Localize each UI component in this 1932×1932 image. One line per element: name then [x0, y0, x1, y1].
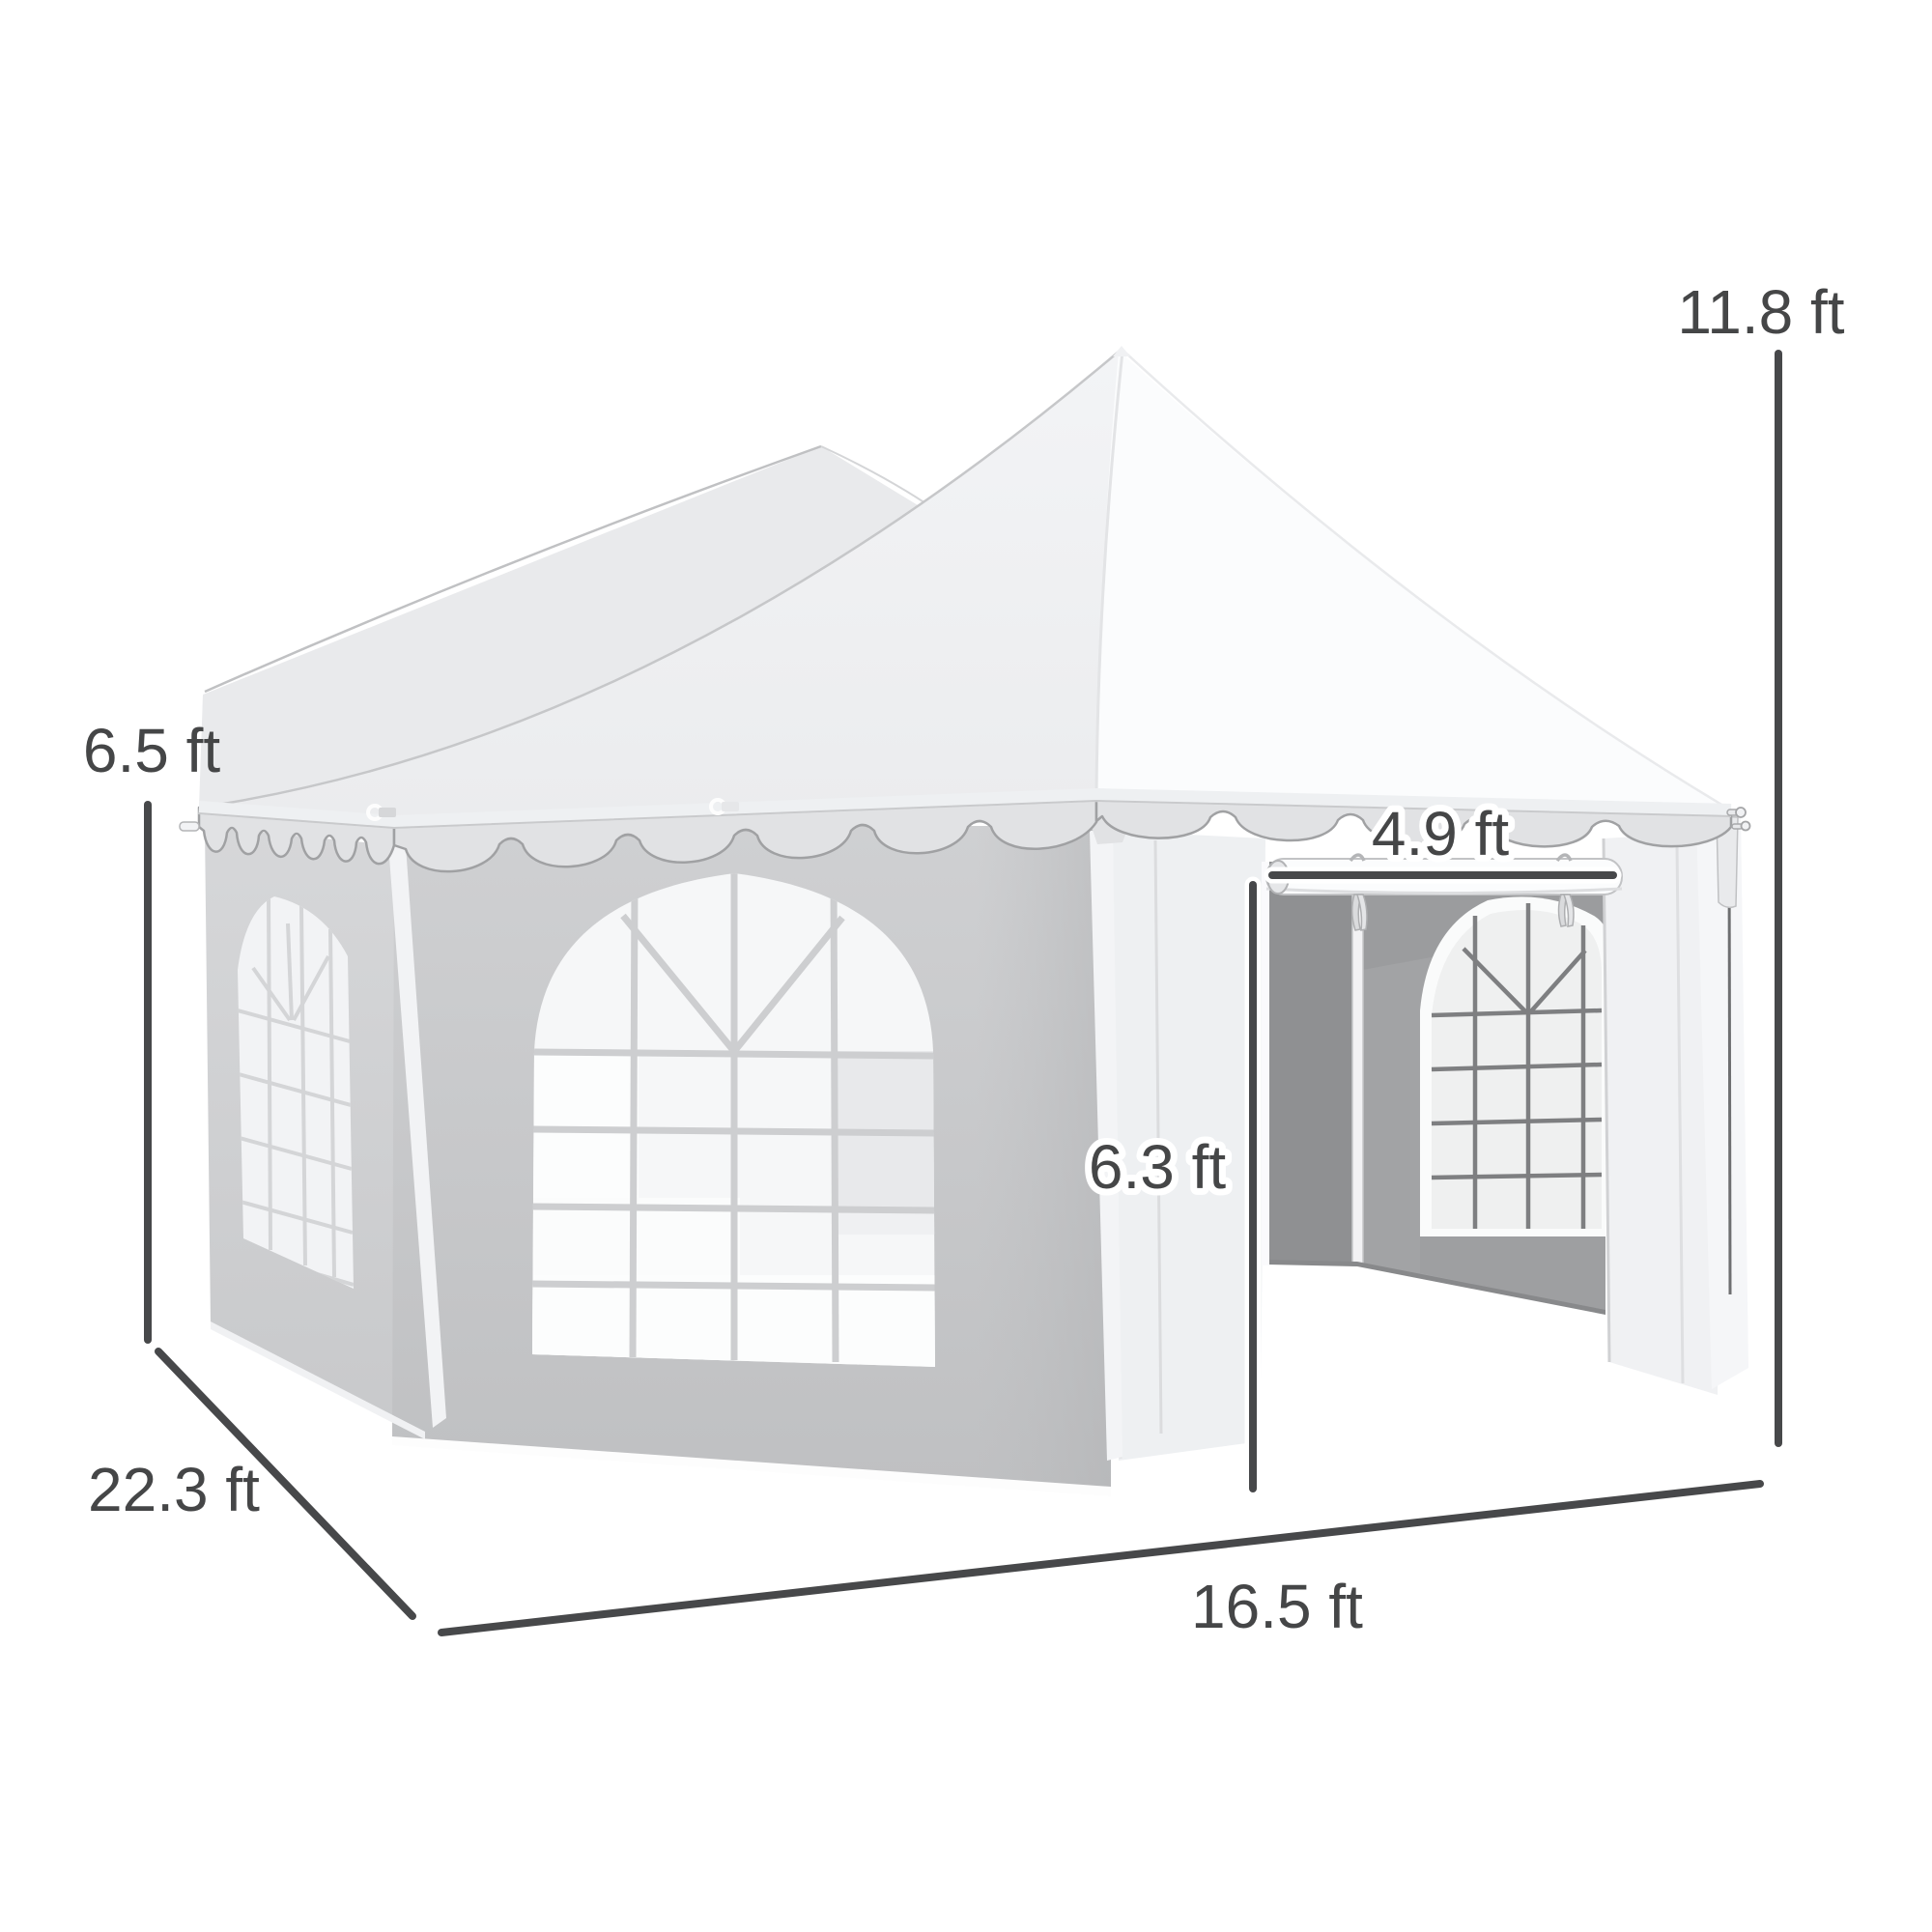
svg-text:16.5 ft: 16.5 ft [1191, 1572, 1363, 1641]
svg-text:11.8 ft: 11.8 ft [1677, 277, 1844, 347]
svg-text:6.5 ft: 6.5 ft [83, 716, 221, 785]
svg-text:22.3 ft: 22.3 ft [88, 1455, 260, 1524]
svg-text:6.3 ft: 6.3 ft [1089, 1132, 1227, 1202]
svg-text:4.9 ft: 4.9 ft [1372, 799, 1510, 868]
